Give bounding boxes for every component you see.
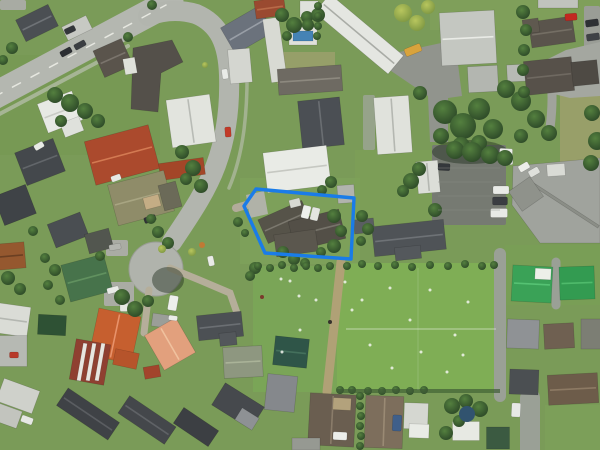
tree — [290, 264, 298, 272]
tree — [114, 289, 130, 305]
roof-ridge — [562, 282, 593, 283]
map-viewport[interactable] — [0, 0, 600, 450]
bird-dot — [351, 309, 354, 312]
tree — [1, 271, 15, 285]
bird-dot — [361, 299, 364, 302]
tree — [356, 402, 364, 410]
pavement — [363, 95, 375, 150]
tree — [490, 261, 498, 269]
building — [509, 369, 539, 395]
tree — [362, 223, 374, 235]
tree — [374, 262, 382, 270]
tree — [356, 210, 368, 222]
tree — [516, 5, 530, 19]
tree — [194, 179, 208, 193]
bird-dot — [344, 281, 347, 284]
tree — [462, 142, 482, 162]
vehicle — [438, 163, 450, 171]
tree — [180, 173, 192, 185]
tree — [91, 114, 105, 128]
tree — [28, 226, 38, 236]
tree — [357, 432, 365, 440]
building — [581, 319, 600, 349]
tree — [40, 253, 50, 263]
tree — [426, 261, 434, 269]
tree — [335, 225, 347, 237]
tree — [95, 251, 105, 261]
vehicle — [10, 352, 19, 358]
building — [228, 48, 253, 84]
tree — [517, 64, 529, 76]
building — [467, 65, 498, 93]
tree — [313, 32, 321, 40]
bird-dot — [281, 351, 284, 354]
tree — [444, 398, 460, 414]
tree — [478, 262, 486, 270]
tree — [481, 146, 499, 164]
tree — [413, 86, 427, 100]
tree — [127, 301, 143, 317]
building — [409, 424, 429, 439]
tree — [356, 236, 366, 246]
bird-dot — [280, 278, 283, 281]
tree — [468, 98, 490, 120]
tree — [314, 22, 322, 30]
building — [143, 365, 161, 380]
building — [37, 314, 66, 335]
tree — [286, 17, 302, 33]
vehicle — [511, 403, 521, 417]
tree — [327, 239, 341, 253]
bird-dot — [369, 344, 372, 347]
tree — [326, 262, 334, 270]
grass-patch — [545, 405, 600, 450]
bird-dot — [429, 289, 432, 292]
tree — [444, 262, 452, 270]
tree — [302, 262, 310, 270]
tree — [520, 24, 532, 36]
tree — [446, 141, 464, 159]
tree — [188, 248, 196, 256]
bird-dot — [454, 334, 457, 337]
tree — [147, 0, 157, 10]
tree — [433, 128, 449, 144]
tree — [459, 394, 473, 408]
vehicle — [225, 127, 232, 137]
ground-object — [199, 242, 205, 248]
tree — [314, 12, 322, 20]
tree — [278, 261, 286, 269]
building — [547, 163, 566, 176]
bird-dot — [391, 367, 394, 370]
aerial-map[interactable] — [0, 0, 600, 450]
vehicle — [333, 432, 347, 440]
tree — [541, 125, 557, 141]
building — [333, 398, 352, 411]
tree — [254, 262, 262, 270]
bird-dot — [420, 351, 423, 354]
tree — [397, 185, 409, 197]
bird-dot — [289, 280, 292, 283]
building — [292, 438, 320, 450]
tree — [325, 176, 337, 188]
tree — [394, 4, 412, 22]
building — [0, 336, 27, 367]
bird-dot — [409, 319, 412, 322]
building — [543, 323, 574, 350]
bird-dot — [389, 287, 392, 290]
tree — [202, 62, 208, 68]
tree — [357, 412, 365, 420]
tree — [327, 209, 341, 223]
tree — [275, 8, 289, 22]
tree — [14, 283, 26, 295]
bird-dot — [299, 329, 302, 332]
vehicle — [493, 186, 509, 194]
tree — [483, 119, 503, 139]
building — [123, 57, 138, 75]
tree — [343, 262, 351, 270]
tree — [314, 264, 322, 272]
tree — [314, 2, 322, 10]
bird-dot — [298, 295, 301, 298]
vehicle — [221, 69, 228, 80]
grass-patch — [253, 266, 337, 392]
tree-shadow — [152, 267, 184, 293]
tree — [233, 217, 243, 227]
tree — [514, 129, 528, 143]
building — [219, 332, 237, 347]
tree — [266, 264, 274, 272]
tree — [518, 86, 530, 98]
vehicle — [493, 197, 508, 205]
tree — [527, 110, 545, 128]
tree — [497, 80, 515, 98]
bird-dot — [467, 301, 470, 304]
tree — [439, 426, 453, 440]
tree — [55, 295, 65, 305]
bird-dot — [462, 354, 465, 357]
tree — [409, 15, 425, 31]
tree — [584, 105, 600, 121]
tree — [356, 392, 364, 400]
building — [538, 0, 578, 8]
tree — [146, 214, 156, 224]
tree — [43, 280, 53, 290]
building — [264, 374, 298, 413]
tree — [583, 155, 599, 171]
tree — [461, 260, 469, 268]
tree — [408, 263, 416, 271]
vehicle — [565, 13, 578, 21]
tree — [175, 145, 189, 159]
building — [571, 60, 599, 87]
tree — [77, 103, 93, 119]
tree — [241, 229, 249, 237]
tree — [302, 19, 314, 31]
ground-object — [260, 295, 264, 299]
building — [507, 319, 540, 349]
building — [487, 427, 510, 449]
tree — [356, 422, 364, 430]
pavement — [0, 0, 26, 10]
tree — [282, 31, 292, 41]
tree — [497, 150, 513, 166]
vehicle — [392, 415, 402, 431]
tree — [358, 260, 366, 268]
tree — [49, 264, 61, 276]
ground-object — [328, 320, 332, 324]
bird-dot — [446, 371, 449, 374]
tree — [123, 32, 133, 42]
tree — [421, 0, 435, 14]
building — [535, 268, 552, 280]
vehicle — [168, 315, 178, 321]
tree — [412, 162, 426, 176]
tree — [356, 442, 364, 450]
tree — [55, 115, 67, 127]
tree — [61, 94, 79, 112]
tree — [158, 245, 166, 253]
tree — [142, 295, 154, 307]
bird-dot — [315, 299, 318, 302]
tree — [391, 261, 399, 269]
ground-object — [459, 406, 475, 422]
tree — [152, 226, 164, 238]
building — [394, 245, 421, 261]
tree — [245, 271, 255, 281]
tree — [6, 42, 18, 54]
tree — [518, 44, 530, 56]
tree — [47, 87, 63, 103]
